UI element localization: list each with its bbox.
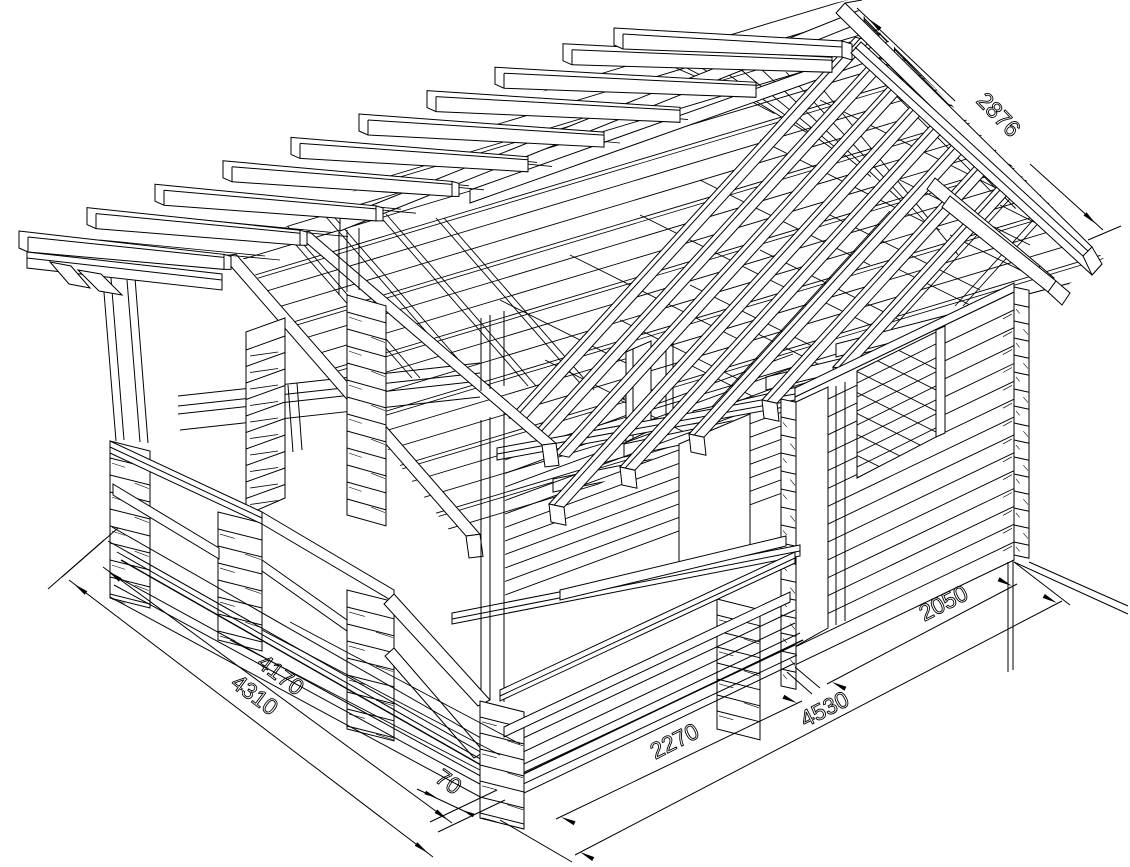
svg-text:2270: 2270 bbox=[646, 718, 703, 764]
svg-text:70: 70 bbox=[431, 763, 467, 799]
